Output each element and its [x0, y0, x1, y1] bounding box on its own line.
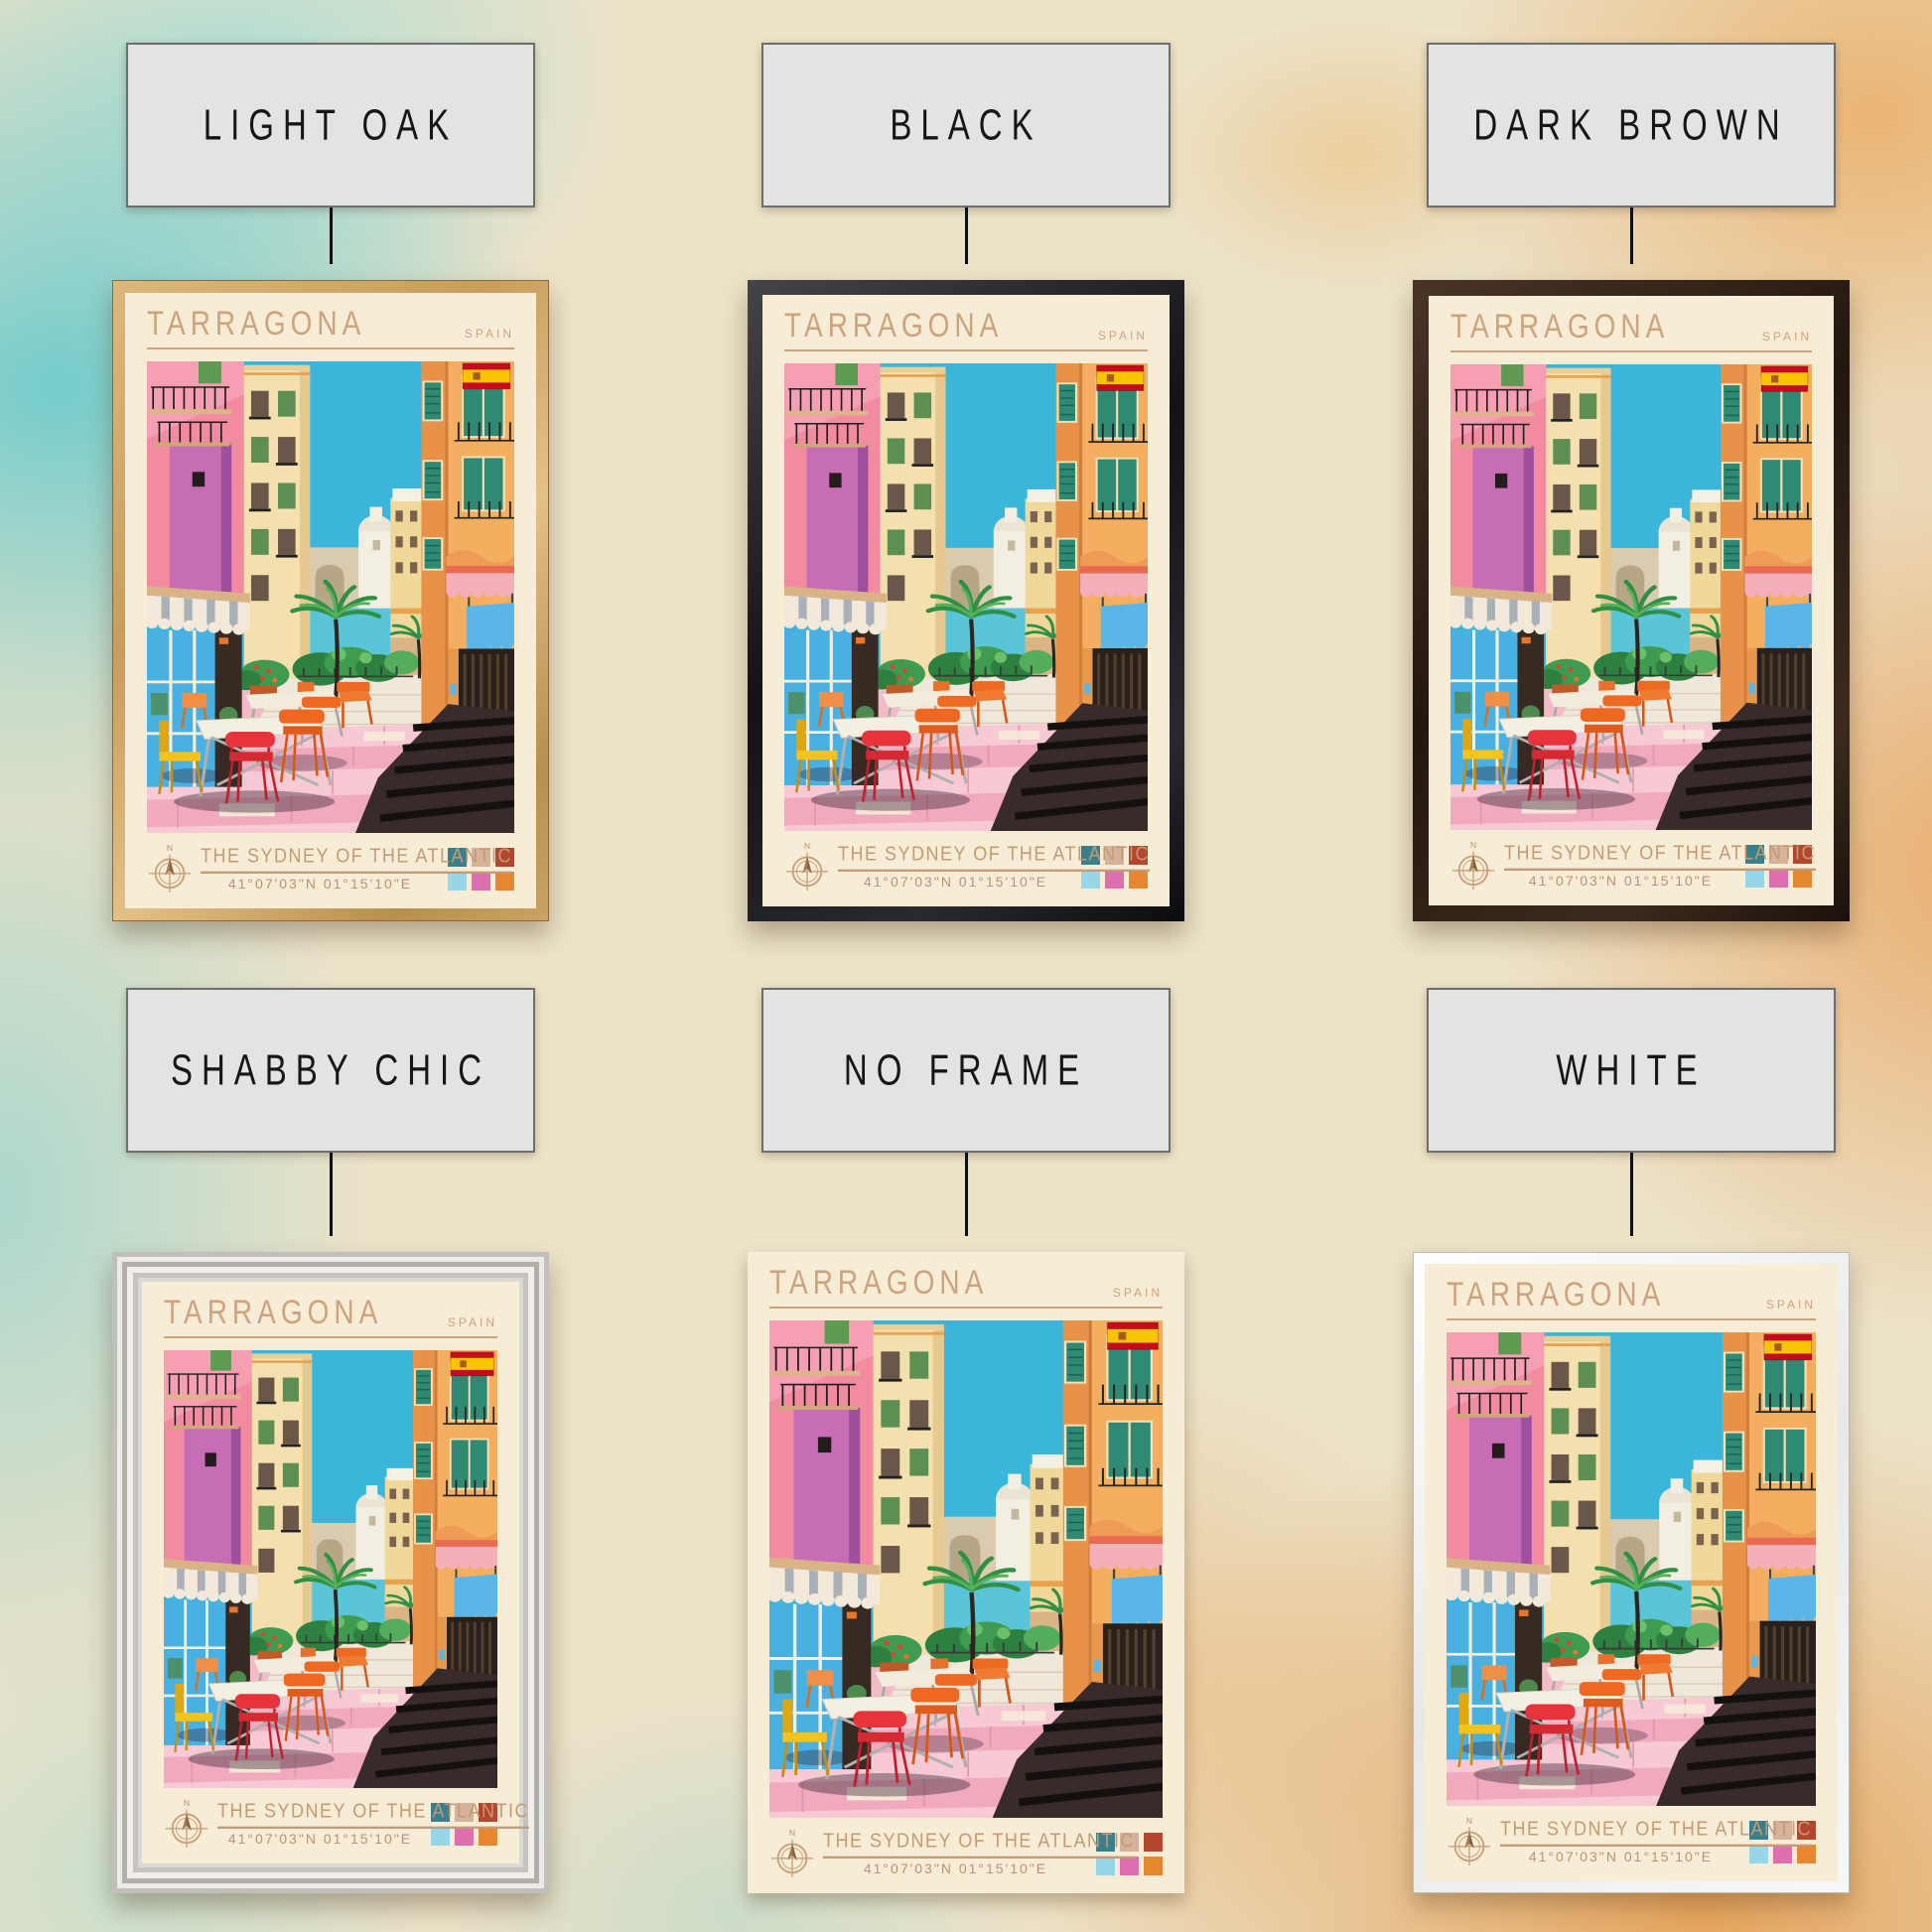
hanging-string — [1630, 207, 1633, 264]
frame-option-label-text: SHABBY CHIC — [171, 1045, 490, 1095]
street-scene-art — [769, 1320, 1163, 1818]
poster-title: TARRAGONA — [147, 307, 365, 341]
palette-swatch — [1745, 869, 1764, 888]
poster-shabby-chic[interactable]: TARRAGONA SPAIN N THE SYDNEY OF THE ATLA… — [112, 1252, 549, 1893]
palette-swatch — [472, 872, 490, 891]
poster-country: SPAIN — [1113, 1286, 1163, 1300]
poster-country: SPAIN — [465, 327, 514, 341]
hanging-string — [965, 1153, 968, 1236]
poster-subtitle: THE SYDNEY OF THE ATLANTIC — [217, 1799, 529, 1829]
poster-country: SPAIN — [1762, 330, 1812, 344]
poster-footer: N THE SYDNEY OF THE ATLANTIC 41°07'03"N … — [1450, 830, 1812, 894]
poster-header: TARRAGONA SPAIN — [1450, 316, 1812, 352]
frame-option-label-black[interactable]: BLACK — [761, 43, 1171, 207]
poster-footer: N THE SYDNEY OF THE ATLANTIC 41°07'03"N … — [164, 1788, 497, 1852]
poster-print: TARRAGONA SPAIN N THE SYDNEY OF THE ATLA… — [1429, 296, 1834, 905]
street-scene-art — [784, 363, 1148, 831]
frame-option-cell-dark-brown: DARK BROWN TARRAGONA SPAIN N THE SYDNEY … — [1413, 43, 1850, 937]
poster-white[interactable]: TARRAGONA SPAIN N THE SYDNEY OF THE ATLA… — [1413, 1252, 1850, 1893]
poster-subtitle: THE SYDNEY OF THE ATLANTIC — [201, 844, 512, 874]
poster-print: TARRAGONA SPAIN N THE SYDNEY OF THE ATLA… — [1425, 1264, 1838, 1881]
palette-swatch — [1120, 1857, 1139, 1875]
poster-coordinates: 41°07'03"N 01°15'10"E — [823, 1861, 1088, 1876]
poster-footer-text: THE SYDNEY OF THE ATLANTIC 41°07'03"N 01… — [1504, 843, 1737, 889]
palette-swatch — [1773, 1845, 1792, 1863]
poster-country: SPAIN — [1766, 1298, 1816, 1311]
palette-swatch — [1797, 1845, 1816, 1863]
frame-option-label-shabby-chic[interactable]: SHABBY CHIC — [126, 988, 535, 1153]
palette-swatch — [495, 872, 514, 891]
poster-print: TARRAGONA SPAIN N THE SYDNEY OF THE ATLA… — [762, 295, 1170, 906]
poster-coordinates: 41°07'03"N 01°15'10"E — [217, 1831, 423, 1847]
poster-subtitle: THE SYDNEY OF THE ATLANTIC — [823, 1829, 1135, 1859]
poster-coordinates: 41°07'03"N 01°15'10"E — [1504, 873, 1737, 889]
frame-option-label-text: NO FRAME — [844, 1045, 1088, 1095]
poster-footer: N THE SYDNEY OF THE ATLANTIC 41°07'03"N … — [147, 833, 514, 897]
poster-print: TARRAGONA SPAIN N THE SYDNEY OF THE ATLA… — [125, 293, 536, 908]
compass-icon: N — [164, 1796, 209, 1852]
poster-header: TARRAGONA SPAIN — [1447, 1284, 1816, 1320]
poster-illustration — [147, 361, 514, 833]
poster-illustration — [784, 363, 1148, 831]
frame-option-label-text: WHITE — [1556, 1045, 1706, 1095]
frame-option-label-dark-brown[interactable]: DARK BROWN — [1427, 43, 1836, 207]
poster-print: TARRAGONA SPAIN N THE SYDNEY OF THE ATLA… — [142, 1282, 519, 1863]
poster-footer-text: THE SYDNEY OF THE ATLANTIC 41°07'03"N 01… — [201, 846, 440, 892]
poster-footer: N THE SYDNEY OF THE ATLANTIC 41°07'03"N … — [1447, 1806, 1816, 1869]
hanging-string — [965, 207, 968, 264]
palette-swatch — [1129, 870, 1148, 889]
poster-title: TARRAGONA — [1447, 1278, 1665, 1311]
poster-footer-text: THE SYDNEY OF THE ATLANTIC 41°07'03"N 01… — [1500, 1819, 1741, 1864]
poster-country: SPAIN — [448, 1315, 497, 1329]
frame-options-grid: LIGHT OAK TARRAGONA SPAIN N THE SYDNEY O… — [0, 0, 1932, 1932]
frame-option-label-text: BLACK — [890, 100, 1041, 150]
poster-coordinates: 41°07'03"N 01°15'10"E — [838, 874, 1073, 890]
poster-black[interactable]: TARRAGONA SPAIN N THE SYDNEY OF THE ATLA… — [748, 280, 1184, 921]
palette-swatch — [1749, 1845, 1768, 1863]
palette-swatch — [1081, 870, 1100, 889]
compass-icon: N — [784, 839, 830, 895]
street-scene-art — [164, 1350, 497, 1788]
frame-option-cell-shabby-chic: SHABBY CHIC TARRAGONA SPAIN N THE SYDNEY… — [112, 988, 549, 1909]
palette-swatch — [1144, 1833, 1163, 1852]
poster-footer-text: THE SYDNEY OF THE ATLANTIC 41°07'03"N 01… — [823, 1831, 1088, 1876]
frame-option-label-no-frame[interactable]: NO FRAME — [761, 988, 1171, 1153]
street-scene-art — [1447, 1332, 1816, 1806]
poster-footer: N THE SYDNEY OF THE ATLANTIC 41°07'03"N … — [769, 1818, 1163, 1881]
frame-option-label-light-oak[interactable]: LIGHT OAK — [126, 43, 535, 207]
poster-no-frame[interactable]: TARRAGONA SPAIN N THE SYDNEY OF THE ATLA… — [748, 1252, 1184, 1893]
compass-north-label: N — [184, 1798, 190, 1808]
poster-light-oak[interactable]: TARRAGONA SPAIN N THE SYDNEY OF THE ATLA… — [112, 280, 549, 921]
poster-header: TARRAGONA SPAIN — [164, 1302, 497, 1338]
hanging-string — [330, 1153, 333, 1236]
compass-north-label: N — [167, 843, 173, 853]
compass-north-label: N — [1470, 840, 1476, 850]
poster-footer-text: THE SYDNEY OF THE ATLANTIC 41°07'03"N 01… — [217, 1801, 423, 1847]
poster-header: TARRAGONA SPAIN — [769, 1272, 1163, 1309]
compass-north-label: N — [804, 841, 810, 851]
palette-swatch — [1096, 1857, 1115, 1875]
compass-icon: N — [1450, 838, 1496, 894]
palette-swatch — [1769, 869, 1788, 888]
poster-dark-brown[interactable]: TARRAGONA SPAIN N THE SYDNEY OF THE ATLA… — [1413, 280, 1850, 921]
frame-option-cell-black: BLACK TARRAGONA SPAIN N THE SYDNEY OF TH… — [748, 43, 1184, 937]
poster-subtitle: THE SYDNEY OF THE ATLANTIC — [1500, 1817, 1812, 1847]
frame-option-label-white[interactable]: WHITE — [1427, 988, 1836, 1153]
palette-swatch — [1105, 870, 1124, 889]
poster-footer: N THE SYDNEY OF THE ATLANTIC 41°07'03"N … — [784, 831, 1148, 895]
compass-icon: N — [769, 1826, 815, 1881]
palette-swatch — [479, 1827, 497, 1846]
frame-option-cell-white: WHITE TARRAGONA SPAIN N THE SYDNEY OF TH… — [1413, 988, 1850, 1909]
frame-option-label-text: LIGHT OAK — [204, 100, 458, 150]
poster-footer-text: THE SYDNEY OF THE ATLANTIC 41°07'03"N 01… — [838, 844, 1073, 890]
poster-print: TARRAGONA SPAIN N THE SYDNEY OF THE ATLA… — [748, 1252, 1184, 1893]
compass-north-label: N — [789, 1828, 795, 1838]
frame-option-label-text: DARK BROWN — [1473, 100, 1788, 150]
hanging-string — [1630, 1153, 1633, 1236]
poster-illustration — [1447, 1332, 1816, 1806]
poster-coordinates: 41°07'03"N 01°15'10"E — [201, 876, 440, 892]
poster-title: TARRAGONA — [1450, 310, 1669, 344]
poster-country: SPAIN — [1098, 329, 1148, 343]
poster-illustration — [164, 1350, 497, 1788]
frame-option-cell-light-oak: LIGHT OAK TARRAGONA SPAIN N THE SYDNEY O… — [112, 43, 549, 937]
poster-header: TARRAGONA SPAIN — [784, 315, 1148, 351]
poster-illustration — [769, 1320, 1163, 1818]
poster-title: TARRAGONA — [164, 1296, 382, 1329]
street-scene-art — [147, 361, 514, 833]
compass-icon: N — [1447, 1814, 1492, 1869]
poster-subtitle: THE SYDNEY OF THE ATLANTIC — [838, 842, 1150, 872]
poster-title: TARRAGONA — [769, 1266, 988, 1300]
frame-option-cell-no-frame: NO FRAME TARRAGONA SPAIN N THE SYDNEY OF… — [748, 988, 1184, 1909]
palette-swatch — [448, 872, 467, 891]
poster-coordinates: 41°07'03"N 01°15'10"E — [1500, 1849, 1741, 1864]
compass-north-label: N — [1466, 1816, 1472, 1826]
palette-swatch — [1144, 1857, 1163, 1875]
palette-swatch — [455, 1827, 474, 1846]
poster-header: TARRAGONA SPAIN — [147, 313, 514, 349]
hanging-string — [330, 207, 333, 264]
palette-swatch — [1793, 869, 1812, 888]
compass-icon: N — [147, 841, 193, 897]
palette-swatch — [431, 1827, 450, 1846]
poster-illustration — [1450, 364, 1812, 830]
street-scene-art — [1450, 364, 1812, 830]
poster-title: TARRAGONA — [784, 309, 1003, 343]
poster-subtitle: THE SYDNEY OF THE ATLANTIC — [1504, 841, 1816, 871]
